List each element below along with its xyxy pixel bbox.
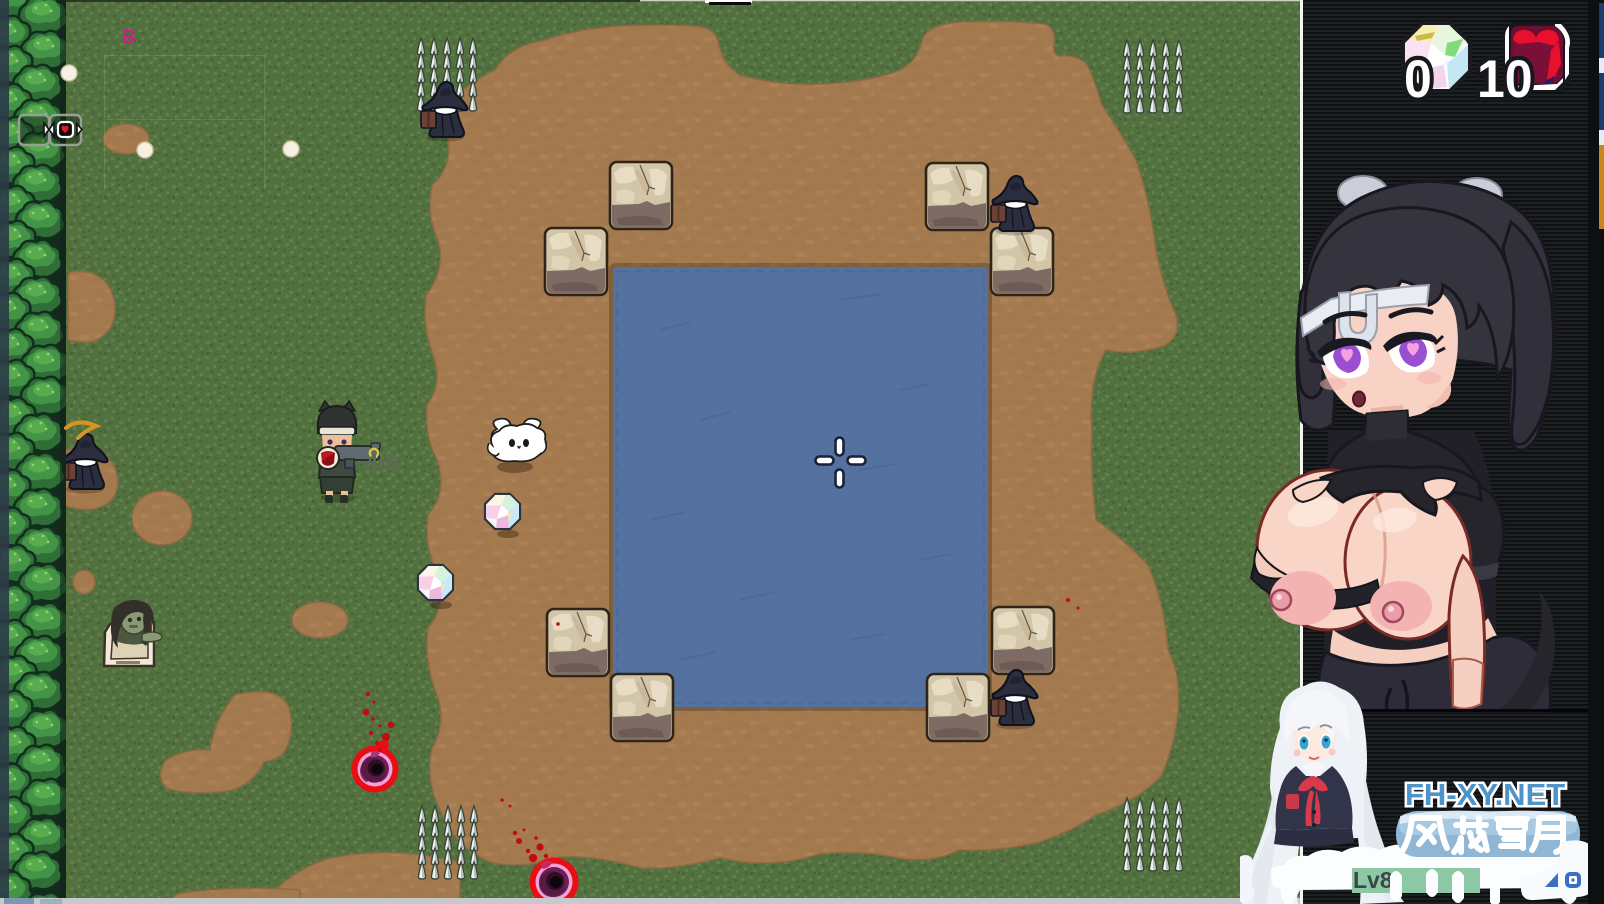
svg-text:0: 0 — [1404, 49, 1432, 109]
svg-text:10: 10 — [1477, 49, 1533, 109]
svg-text:Lv8: Lv8 — [1353, 867, 1393, 893]
svg-text:B: B — [122, 27, 136, 48]
svg-text:FH-XY.NET: FH-XY.NET — [1405, 777, 1565, 812]
svg-text:4/6: 4/6 — [365, 450, 398, 477]
